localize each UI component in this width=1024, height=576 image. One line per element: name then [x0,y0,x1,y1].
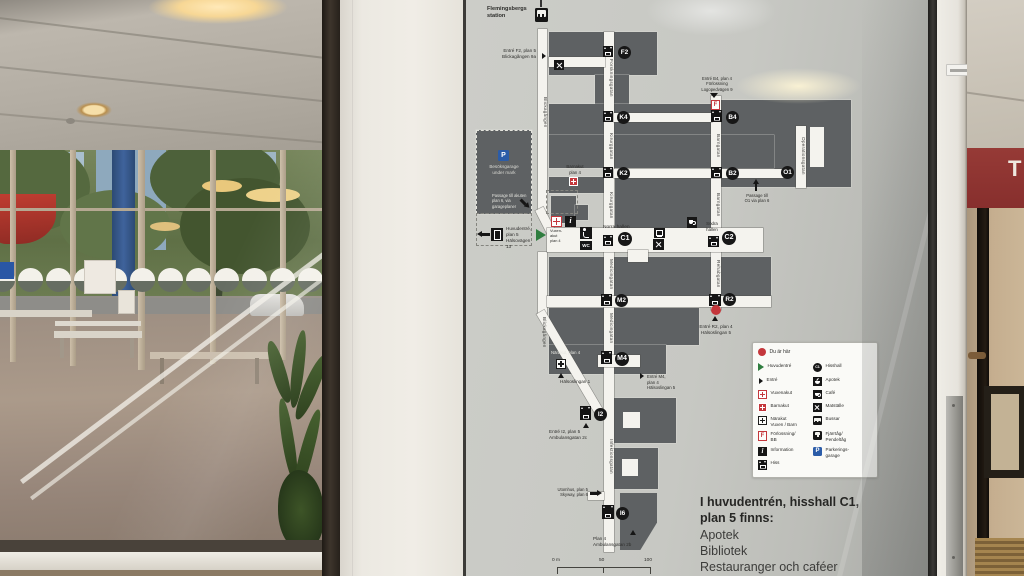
train-station-icon [535,8,548,22]
forlossning-icon: F [758,431,767,441]
sticker-text-line [950,69,968,72]
legend-item: Fjärrtåg/ Pendeltåg [813,431,871,443]
scale-bar-tick [603,567,604,573]
dashed-area-barnakut [546,190,578,214]
road-blickagangen-lower [538,252,547,315]
hall-extension [628,250,648,262]
matstalle-icon [813,403,822,412]
wall-seam [352,0,353,576]
screw [952,556,955,559]
hiss-icon [758,460,767,470]
vuxenakut-label: Vuxen- akut plan 4 [550,228,566,243]
scale-label-0: 0 m [552,558,566,564]
du-ar-har-icon [758,348,766,356]
elevator-icon [603,167,613,178]
hisshall-node-b2: B2 [726,167,739,180]
hisshall-node-f2: F2 [618,46,631,59]
screw [952,404,955,407]
legend-title-row: Du är här [758,348,818,356]
street-label-kirurggatan: Kirurggatan [603,126,613,166]
board-glare [736,68,861,104]
radiator [975,538,1024,576]
building-block [549,257,771,296]
hisshall-letter: C1 [815,365,820,369]
street-label-blickagangen-lower: Blickagången [536,309,546,355]
cafe-icon [813,390,822,399]
footer-item: Bibliotek [700,544,900,558]
utomhus-label: Utomhus, plan 5 Skyway, plan 6 [554,487,588,498]
narakut-icon [758,416,767,425]
scale-bar-tick [650,567,651,574]
street-label-forskningsgatan: Forskningsgatan [603,50,613,106]
legend-title: Du är här [770,348,791,356]
legend-item: Bussar [813,416,871,425]
hisshall-node-m2: M2 [615,294,628,307]
apotek-icon [813,377,822,386]
narakut-label: Närakut, plan 4 [551,350,583,356]
elevator-icon [711,110,722,122]
legend-item-label: Café [826,390,836,396]
legend-item: Huvudentré [758,363,816,371]
legend-item-label: Hisshall [826,363,842,369]
information-letter: i [569,216,571,225]
forlossning-letter: F [761,433,765,439]
plan4-ambulansgatan-label: Plan 4 Ambulansgatan 2b [593,536,643,548]
street-label-barngatan: Barngatan [710,126,720,166]
hisshall-node-k2: K2 [617,167,630,180]
huvudentre-label: Huvudentré, plan 5 Hälsovägen 13 [506,226,536,250]
hisshall-node-c2: C2 [722,231,736,245]
street-label-kirurggatan: Kirurggatan [603,184,613,226]
street-label-blickagangen: Blickagången [537,88,547,136]
window-sill [0,552,322,572]
elevator-icon [601,294,612,306]
wall-left-of-board [340,0,463,576]
hisshall-node-m4: M4 [615,352,629,366]
legend-item: C1Hisshall [813,363,871,372]
legend-item: Café [813,390,871,399]
station-connector-line [540,0,542,7]
bussar-icon [813,416,822,425]
footer-heading: I huvudentrén, hisshall C1, plan 5 finns… [700,494,920,526]
legend-item-label: Huvudentré [768,363,792,369]
legend-item-label: Förlossning/ BB [771,431,796,443]
barnakut-icon [758,403,767,412]
vuxenakut-icon [758,390,767,399]
legend-item: Matställe [813,403,871,412]
hisshall-node-c1: C1 [618,232,632,246]
legend-item-label: Hiss [771,460,780,466]
entre-triangle-up-icon [558,373,564,378]
legend-item: iInformation [758,447,816,456]
barnakut-icon [569,177,578,186]
glass-sheen [0,150,322,570]
entrance-door-icon [491,228,503,241]
legend-item-label: Fjärrtåg/ Pendeltåg [826,431,847,443]
legend-item-label: Information [771,447,794,453]
hisshall-node-k4: K4 [617,111,630,124]
courtyard [622,459,638,476]
entre-triangle-down-icon [710,93,718,98]
footer-item: Apotek [700,528,900,542]
information-icon: i [565,216,576,227]
hisshall-node-i2: I2 [594,408,607,421]
station-label: Flemingsbergs station [487,6,533,21]
passage-o1-arrow-icon [753,179,760,191]
entre-b4-label: Entré B4, plan 4 Förlossning Logopedväge… [695,76,739,92]
huvudentre-triangle-icon [536,229,546,241]
tag-icon [813,431,822,440]
legend-item: FFörlossning/ BB [758,431,816,443]
display-icon [654,228,665,238]
board-glare [646,0,776,36]
metal-corner-guard [946,396,963,576]
hallway-view: T [967,0,1024,576]
elevator-icon [711,167,722,178]
parking-icon: P [498,150,509,161]
hisshall-node-i6: I6 [616,507,629,520]
du-ar-har-dot [711,305,721,315]
garage-label: Besöksgarage under mark [483,164,525,176]
halsoslingan-1-label: Hälsoslingan 1 [560,379,598,385]
hisshall-node-o1: O1 [781,166,794,179]
legend-item: Entré [759,377,817,384]
scale-bar-tick [557,567,558,574]
norra-hallen-label: Norra hallen [603,225,633,231]
hisshall-icon: C1 [813,363,822,372]
map-board-frame-right [928,0,937,576]
building-block [615,177,712,228]
building-block [549,308,699,345]
entre-triangle-up-icon [712,316,718,321]
parkering-icon: P [813,447,822,456]
elevator-icon [603,46,613,57]
passage-o1-label: Passage till O1 via plan 6 [741,193,773,204]
entre-f2-label: Entré F2, plan 5 Blickagången 9a [494,48,536,60]
hallway-notice-panel [991,394,1019,470]
cafe-icon [687,217,697,228]
operations-room [810,127,824,167]
elevator-icon [603,111,613,122]
glass-wall-reflection [0,0,322,576]
scale-label-50: 50 [599,558,609,564]
barnakut-label: Barnakut plan 4 [564,164,586,175]
elevator-icon [601,351,612,364]
legend-item-label: Matställe [826,403,844,409]
forlossning-letter: F [714,102,718,108]
legend-item: PParkerings- garage [813,447,871,459]
vuxenakut-icon [551,216,562,227]
elevator-icon [603,235,613,246]
forlossning-icon: F [711,100,720,110]
street-label-rehabgatan: Rehabgatan [710,254,720,294]
street-label-infektionsgatan: Infektionsgatan [603,430,613,482]
legend-item-label: Bussar [826,416,840,422]
entre-triangle-up-icon [583,423,589,428]
legend-item: Vuxenakut [758,390,816,399]
legend-item-label: Närakut Vuxen / Barn [771,416,797,428]
sodra-hallen-label: Södra hallen [702,221,722,232]
wc-icon: WC [580,241,592,250]
hallway-notice-frame [984,386,1024,478]
entre-triangle-icon [542,53,546,59]
corridor-m2 [547,296,771,307]
ceiling-recessed-light [76,102,112,118]
hospital-lobby-photo: Flemingsbergs station [0,0,1024,576]
legend-item-label: Barnakut [771,403,789,409]
matstalle-icon [554,60,564,70]
legend-item-label: Entré [767,377,778,383]
huvudentre-arrow-icon [477,231,490,238]
legend-item: Hiss [758,460,816,470]
entre-m4-label: Entré M4, plan 4 Hälsoslingan 5 [647,374,683,391]
information-letter: i [762,447,764,455]
elevator-icon [602,505,614,519]
smoke-detector [66,118,75,124]
entre-i2-label: Entré I2, plan 5 Ambulansgatan 2c [549,429,593,441]
skyway-arrow-icon [589,490,602,497]
legend-item-label: Parkerings- garage [826,447,850,459]
corridor-k2-o1 [614,169,784,178]
door-handle [968,352,986,359]
parking-letter: P [815,448,819,454]
entre-r2-label: Entré R2, plan 4 Hälsoslingan 5 [690,324,742,336]
street-label-medicingatan: Medicingatan [603,254,613,294]
footer-item: Restauranger och caféer [700,560,900,574]
matstalle-icon [653,239,664,250]
elevator-icon [580,406,591,420]
board-reflection-streak [862,0,928,576]
floor-strip [0,570,322,576]
street-label-medicingatan: Medicingatan [603,308,613,348]
hallway-red-sign: T [967,148,1024,208]
entre-triangle-icon [759,378,763,384]
huvudentre-triangle-icon [758,363,764,371]
accessible-wc-icon [580,227,592,239]
parking-letter: P [501,152,506,159]
hisshall-node-b4: B4 [726,111,739,124]
map-board: Flemingsbergs station [466,0,928,576]
information-icon: i [758,447,767,456]
hisshall-node-r2: R2 [723,293,736,306]
elevator-icon [708,236,719,247]
entre-flag-icon [640,373,644,379]
legend-item: Närakut Vuxen / Barn [758,416,816,428]
street-label-barngatan: Barngatan [710,184,720,226]
scale-label-100: 100 [644,558,658,564]
entre-triangle-up-icon [630,530,636,535]
wc-letters: WC [582,243,590,248]
hallway-sign-text: T [1008,156,1021,182]
legend-item-label: Vuxenakut [771,390,793,396]
narakut-icon [556,359,566,369]
legend-item: Apotek [813,377,871,386]
street-label-operationsgatan: Operationsgatan [795,127,805,185]
legend-item: Barnakut [758,403,816,412]
legend-item-label: Apotek [826,377,840,383]
door-frame-edge [322,0,340,576]
hallway-ceiling [967,0,1024,148]
courtyard [623,412,640,428]
